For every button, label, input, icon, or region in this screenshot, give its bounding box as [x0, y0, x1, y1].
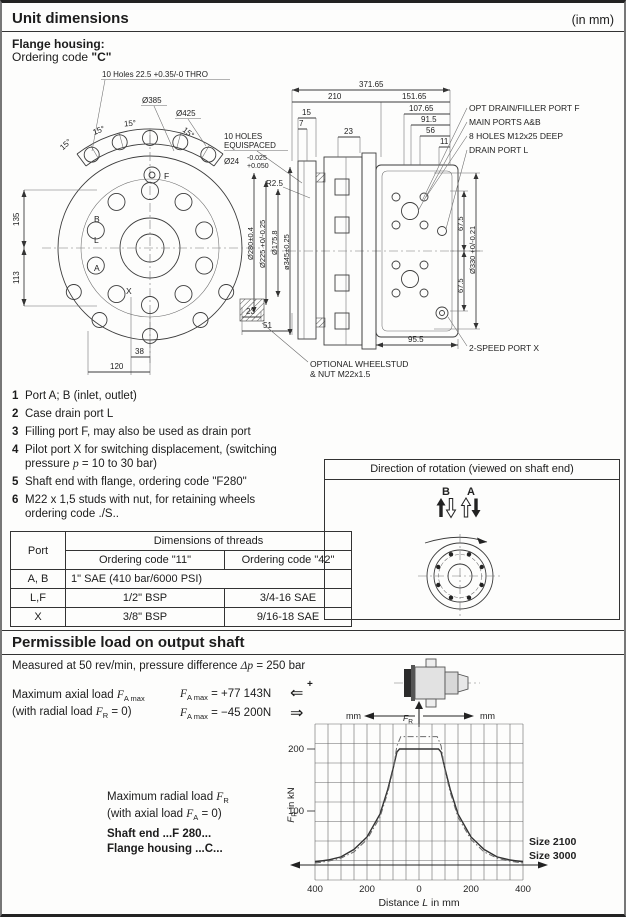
cell-port-x: X — [11, 608, 66, 627]
port-label-b: B — [94, 214, 100, 224]
flow-arrows-b — [437, 498, 456, 518]
dim-151: 151.65 — [402, 92, 427, 101]
dim-15: 15 — [302, 108, 311, 117]
cell-ab-thread: 1" SAE (410 bar/6000 PSI) — [66, 570, 352, 589]
flange-front-view: F B L A X 10 Holes 22.5 +0.35/-0 THRO Ø3… — [12, 70, 264, 375]
direction-of-rotation-box: Direction of rotation (viewed on shaft e… — [324, 459, 620, 620]
table-row-x: X 3/8" BSP 9/16-18 SAE — [11, 608, 352, 627]
section-title-permissible-load: Permissible load on output shaft — [12, 634, 245, 651]
datasheet-page: Unit dimensions (in mm) Flange housing: … — [0, 0, 626, 917]
callout-drain-port-l: DRAIN PORT L — [469, 145, 528, 155]
radial-line2-end: = 0) — [198, 808, 221, 820]
col-threads: Dimensions of threads — [66, 532, 352, 551]
dim-95: 95.5 — [408, 335, 424, 344]
axial-formula-1: FA max = +77 143N — [180, 688, 271, 702]
x-tick-200: 200 — [463, 884, 479, 895]
dim-7: 7 — [299, 119, 304, 128]
note-4-text: Pilot port X for switching displacement,… — [25, 444, 277, 456]
port-label-x: X — [126, 286, 132, 296]
note-1-number: 1 — [12, 389, 18, 403]
dim-d24-tol-plus: +0.050 — [247, 163, 269, 170]
note-2: 2Case drain port L — [12, 407, 320, 421]
flow-arrows-a — [462, 498, 481, 518]
formula2-sub: A max — [187, 712, 208, 721]
two-speed-port-x-hole — [436, 307, 448, 319]
note-4-line2: pressure — [25, 458, 73, 470]
section2-top-rule — [2, 630, 626, 631]
load-chart: FR mm mm 200 100 FR in kN — [282, 653, 626, 913]
y-tick-200: 200 — [288, 744, 304, 755]
axial-load-line1: Maximum axial load FA max — [12, 689, 145, 703]
dim-135: 135 — [12, 212, 21, 226]
note-4-line2-end: = 10 to 30 bar) — [79, 458, 157, 470]
dim-113: 113 — [12, 271, 21, 284]
formula1-value: = +77 143N — [208, 688, 271, 700]
shaft-end-view — [418, 534, 502, 618]
note-6: 6M22 x 1,5 studs with nut, for retaining… — [12, 493, 320, 521]
callout-2-speed-port-x: 2-SPEED PORT X — [469, 343, 539, 353]
x-axis-ticks: 400 200 0 200 400 — [307, 884, 531, 895]
rotation-label-a: A — [467, 486, 475, 498]
legend-size-2100: Size 2100 — [529, 836, 576, 848]
axial-load-line2: (with radial load FR = 0) — [12, 706, 132, 720]
note-6-number: 6 — [12, 493, 18, 507]
mm-direction-arrows: mm mm — [346, 711, 495, 721]
radial-load-line2: (with axial load FA = 0) — [107, 808, 222, 822]
dim-d225: Ø225 +0/-0.25 — [258, 220, 267, 268]
note-5-text: Shaft end with flange, ordering code "F2… — [25, 476, 247, 488]
port-label-a: A — [94, 263, 100, 273]
dim-23-left: 23 — [246, 307, 255, 316]
callout-wheelstud-2: & NUT M22x1.5 — [310, 369, 371, 379]
port-label-l: L — [94, 235, 99, 245]
callout-8-holes: 8 HOLES M12x25 DEEP — [469, 131, 563, 141]
measured-note: Measured at 50 rev/min, pressure differe… — [12, 660, 305, 672]
dim-56: 56 — [426, 126, 435, 135]
note-2-number: 2 — [12, 407, 18, 421]
y-axis-label: FR in kN — [286, 787, 299, 822]
dim-r25: R2.5 — [266, 179, 283, 188]
svg-text:FR: FR — [403, 713, 413, 726]
table-row-ab: A, B 1" SAE (410 bar/6000 PSI) — [11, 570, 352, 589]
note-3: 3Filling port F, may also be used as dra… — [12, 425, 320, 439]
axial-f-symbol: F — [117, 689, 124, 701]
note-3-text: Filling port F, may also be used as drai… — [25, 426, 251, 438]
formula1-sub: A max — [187, 693, 208, 702]
note-4-number: 4 — [12, 443, 18, 457]
note-3-number: 3 — [12, 425, 18, 439]
note-2-text: Case drain port L — [25, 408, 113, 420]
callout-opt-drain-filler-port-f: OPT DRAIN/FILLER PORT F — [469, 103, 580, 113]
col-port: Port — [11, 532, 66, 570]
motor-icon — [394, 659, 480, 707]
mm-label-right: mm — [480, 711, 495, 721]
rotation-diagram: B A — [325, 479, 619, 619]
callout-main-ports-ab: MAIN PORTS A&B — [469, 117, 541, 127]
x-tick-0: 0 — [416, 884, 421, 895]
label-10-holes: 10 HOLES — [224, 132, 262, 141]
x-axis-label: Distance L in mm — [378, 897, 459, 909]
callout-10-holes: 10 Holes 22.5 +0.35/-0 THRO — [102, 70, 208, 79]
drain-port-l-hole — [438, 227, 447, 236]
dim-67-top: 67.5 — [456, 216, 465, 231]
dim-51: 51 — [263, 321, 272, 330]
table-row-lf: L,F 1/2" BSP 3/4-16 SAE — [11, 589, 352, 608]
measured-pre: Measured at 50 rev/min, pressure differe… — [12, 660, 241, 672]
dim-d175: Ø175.8 — [270, 230, 279, 255]
technical-drawing: F B L A X 10 Holes 22.5 +0.35/-0 THRO Ø3… — [2, 61, 626, 385]
middle-dim-labels: 10 HOLES EQUISPACED Ø24 -0.025 +0.050 R2… — [224, 132, 310, 335]
dim-d385: Ø385 — [142, 96, 162, 105]
cell-x-code11: 3/8" BSP — [66, 608, 225, 627]
mm-label-left: mm — [346, 711, 361, 721]
chart-grid — [315, 724, 523, 880]
section-side-view: ø345±0.25 67.5 67.5 Ø330 +0/-0.21 371.65… — [262, 80, 580, 379]
x-label-post: in mm — [428, 897, 460, 909]
angle-15-1: 15° — [58, 137, 73, 152]
dim-107: 107.65 — [409, 104, 434, 113]
cell-port-ab: A, B — [11, 570, 66, 589]
note-5-number: 5 — [12, 475, 18, 489]
angle-15-2: 15° — [92, 124, 107, 137]
formula2-value: = −45 200N — [208, 707, 271, 719]
dim-38: 38 — [135, 347, 144, 356]
x-tick-n400: 400 — [307, 884, 323, 895]
note-4: 4Pilot port X for switching displacement… — [12, 443, 320, 471]
dim-120: 120 — [110, 362, 124, 371]
dim-d24-tol-minus: -0.025 — [247, 155, 267, 162]
dim-d280: Ø280±0.4 — [246, 227, 255, 260]
x-label-pre: Distance — [378, 897, 422, 909]
valve-block-ports — [392, 193, 448, 319]
dim-d24: Ø24 — [224, 157, 240, 166]
port-label-f: F — [164, 171, 169, 181]
dim-d425: Ø425 — [176, 109, 196, 118]
radial-fr-sub: R — [223, 796, 228, 805]
label-equispaced: EQUISPACED — [224, 141, 276, 150]
cam-ring-bolts — [335, 179, 349, 329]
note-6-line2: ordering code ./S.. — [25, 508, 119, 520]
note-6-text: M22 x 1,5 studs with nut, for retaining … — [25, 494, 255, 506]
dim-23-body: 23 — [344, 127, 353, 136]
axial-f-sub: A max — [124, 694, 145, 703]
flange-housing-label: Flange housing: — [12, 37, 105, 51]
y-label-rest: in kN — [286, 787, 297, 811]
formula2-f: F — [180, 707, 187, 719]
dim-d330: Ø330 +0/-0.21 — [468, 226, 477, 274]
rotation-label-b: B — [442, 486, 450, 498]
cell-lf-code11: 1/2" BSP — [66, 589, 225, 608]
axial-line2-end: = 0) — [108, 706, 131, 718]
unit-note: (in mm) — [572, 13, 614, 27]
flange-housing-code: Flange housing ...C... — [107, 843, 223, 855]
chart-legend: Size 2100 Size 3000 — [529, 836, 576, 862]
axial-line1-text: Maximum axial load — [12, 689, 117, 701]
legend-size-3000: Size 3000 — [529, 850, 576, 862]
dim-345: ø345±0.25 — [282, 234, 291, 270]
fr-label-sub: R — [408, 719, 413, 726]
angle-15-3: 15° — [124, 118, 137, 128]
dim-210: 210 — [328, 92, 342, 101]
x-tick-400: 400 — [515, 884, 531, 895]
dim-91: 91.5 — [421, 115, 437, 124]
note-5: 5Shaft end with flange, ordering code "F… — [12, 475, 320, 489]
callout-wheelstud-1: OPTIONAL WHEELSTUD — [310, 359, 408, 369]
section-title-unit-dimensions: Unit dimensions — [12, 10, 129, 27]
note-1-text: Port A; B (inlet, outlet) — [25, 390, 137, 402]
fr-force-arrow: FR — [403, 701, 423, 727]
header-rule — [2, 31, 626, 32]
dim-11: 11 — [440, 137, 449, 146]
rotation-box-title: Direction of rotation (viewed on shaft e… — [325, 460, 619, 480]
measured-delta-p: Δp — [241, 660, 254, 672]
radial-line2-text: (with axial load — [107, 808, 186, 820]
formula1-f: F — [180, 688, 187, 700]
axial-formula-2: FA max = −45 200N — [180, 707, 271, 721]
radial-load-line1: Maximum radial load FR — [107, 791, 229, 805]
radial-line1-text: Maximum radial load — [107, 791, 216, 803]
axial-line2-text: (with radial load — [12, 706, 96, 718]
shaft-end-code: Shaft end ...F 280... — [107, 828, 211, 840]
axial-fr-symbol: F — [96, 706, 103, 718]
filler-port-f-hole — [144, 167, 160, 183]
notes-list: 1Port A; B (inlet, outlet) 2Case drain p… — [12, 389, 320, 525]
x-tick-n200: 200 — [359, 884, 375, 895]
cell-port-lf: L,F — [11, 589, 66, 608]
note-1: 1Port A; B (inlet, outlet) — [12, 389, 320, 403]
threads-table: Port Dimensions of threads Ordering code… — [10, 531, 352, 627]
dim-67-bottom: 67.5 — [456, 278, 465, 293]
table-header-row: Port Dimensions of threads — [11, 532, 352, 551]
dim-371: 371.65 — [359, 80, 384, 89]
col-code-11: Ordering code "11" — [66, 551, 225, 570]
